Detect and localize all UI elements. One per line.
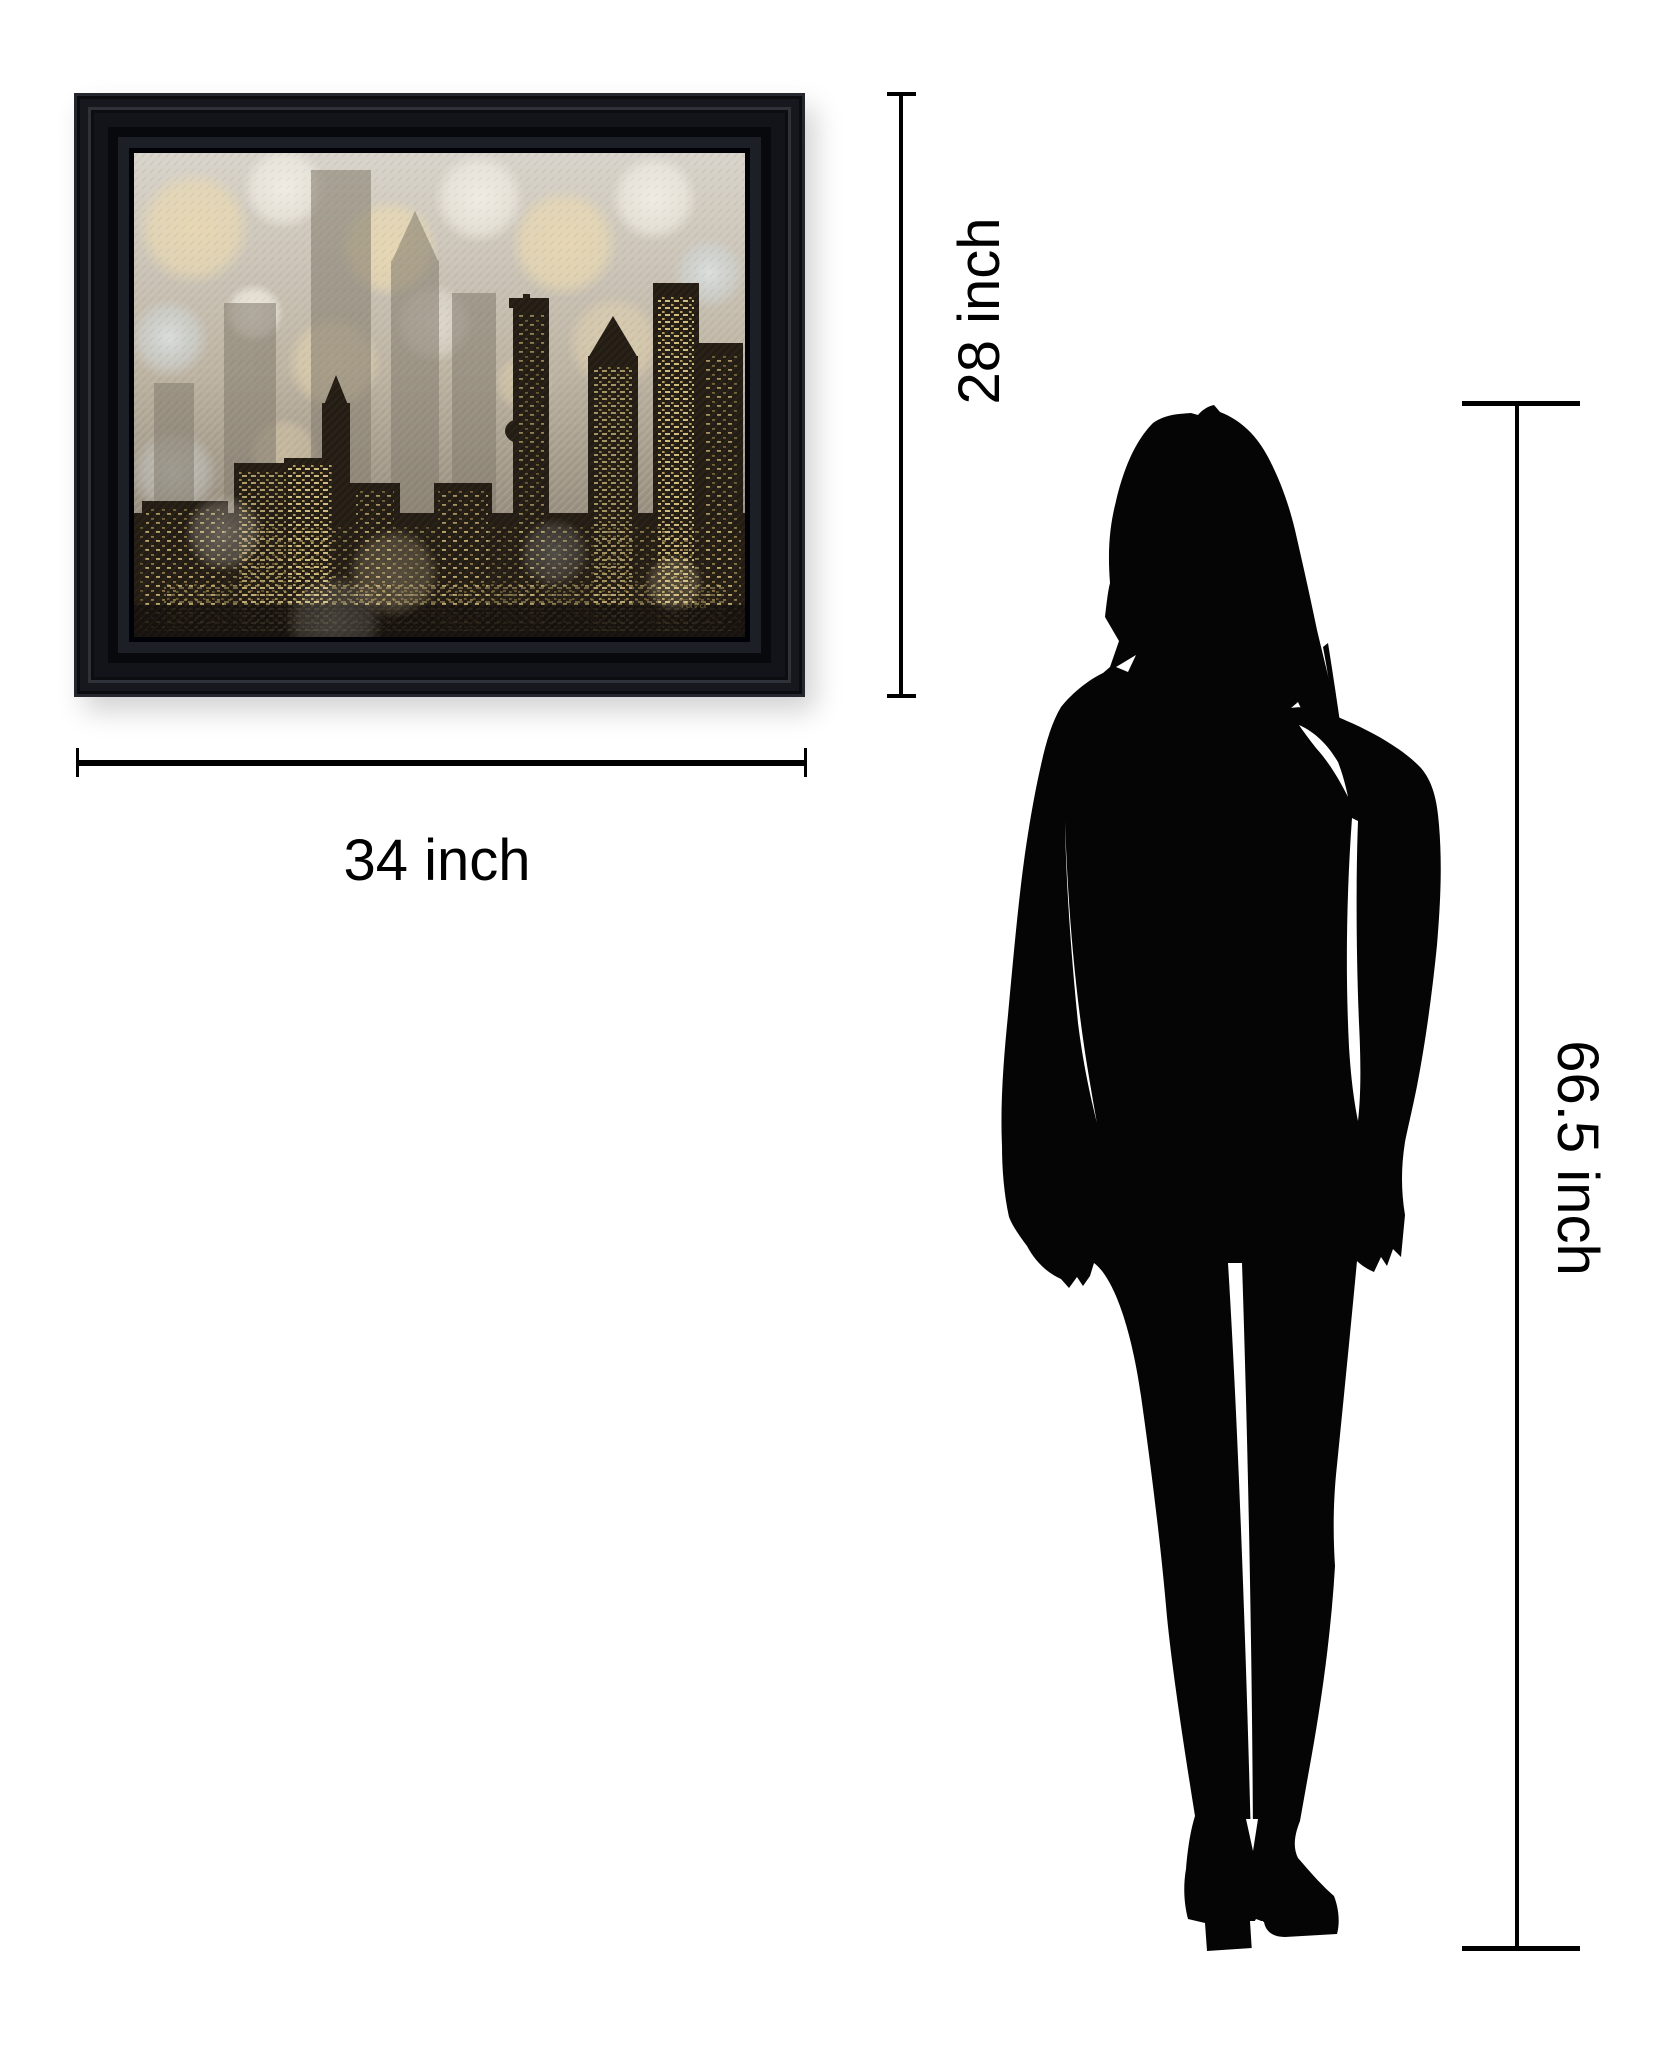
artwork-image: Tava <box>134 153 745 637</box>
width-dim-line <box>77 760 806 766</box>
height-dim-line <box>899 94 903 696</box>
height-dim-bottom-cap <box>887 694 916 698</box>
person-dim-label: 66.5 inch <box>1545 958 1609 1358</box>
framed-artwork: Tava <box>74 93 805 697</box>
person-dim-line <box>1515 403 1519 1949</box>
woman-silhouette <box>995 405 1445 1953</box>
width-dim-right-tick <box>804 748 807 777</box>
brushed-texture-overlay <box>134 153 745 637</box>
artist-signature: Tava <box>679 596 707 611</box>
silhouette-body <box>1001 405 1440 1951</box>
width-dim-label: 34 inch <box>287 829 587 893</box>
size-comparison-figure: Tava 28 inch 34 inch <box>0 0 1680 2048</box>
person-dim-top-cap <box>1462 401 1580 406</box>
person-dim-bottom-cap <box>1462 1946 1580 1951</box>
